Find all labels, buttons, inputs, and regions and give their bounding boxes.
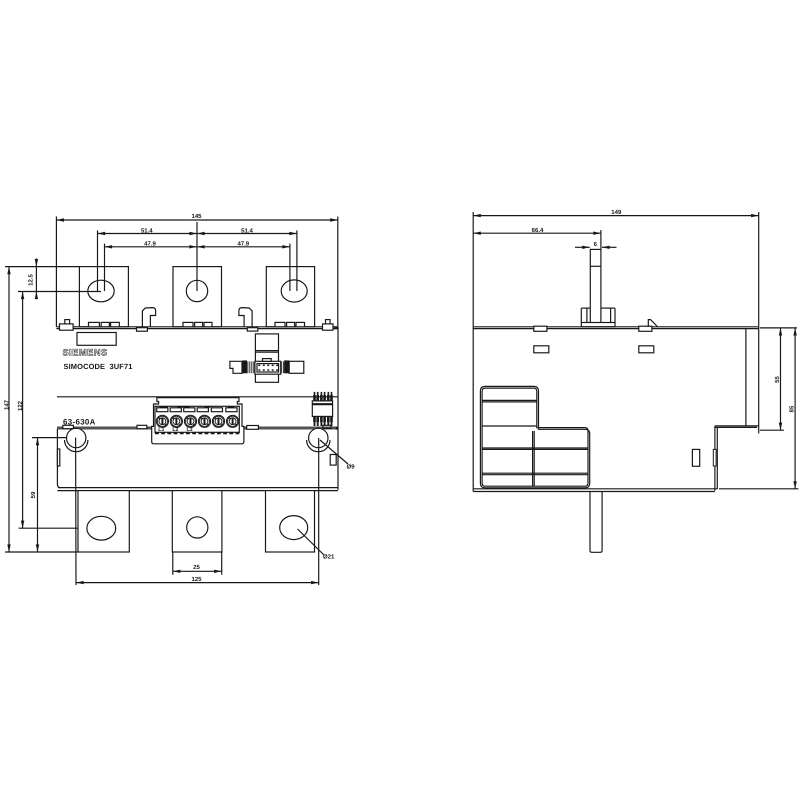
svg-text:25: 25 [193,564,200,571]
svg-text:125: 125 [191,576,202,583]
svg-text:L1: L1 [158,427,164,433]
svg-text:122: 122 [17,400,24,411]
svg-text:59: 59 [30,491,37,498]
svg-text:47.9: 47.9 [237,241,249,248]
svg-text:L3: L3 [187,427,193,433]
svg-text:66.4: 66.4 [532,227,544,234]
svg-text:51.4: 51.4 [241,227,253,234]
svg-text:47.9: 47.9 [144,241,156,248]
svg-text:63-630A: 63-630A [63,417,96,426]
svg-text:55: 55 [774,376,781,383]
svg-text:SIEMENS: SIEMENS [63,348,108,358]
svg-text:L2: L2 [172,427,178,433]
svg-text:Ø9: Ø9 [347,463,356,470]
svg-text:145: 145 [191,213,202,220]
svg-text:149: 149 [611,209,622,216]
svg-text:85: 85 [788,405,795,412]
svg-text:Ø21: Ø21 [323,554,335,561]
svg-text:SIMOCODE 3UF71: SIMOCODE 3UF71 [64,362,133,371]
svg-text:147: 147 [3,399,10,410]
svg-text:51.4: 51.4 [141,227,153,234]
svg-text:12.5: 12.5 [28,274,35,286]
